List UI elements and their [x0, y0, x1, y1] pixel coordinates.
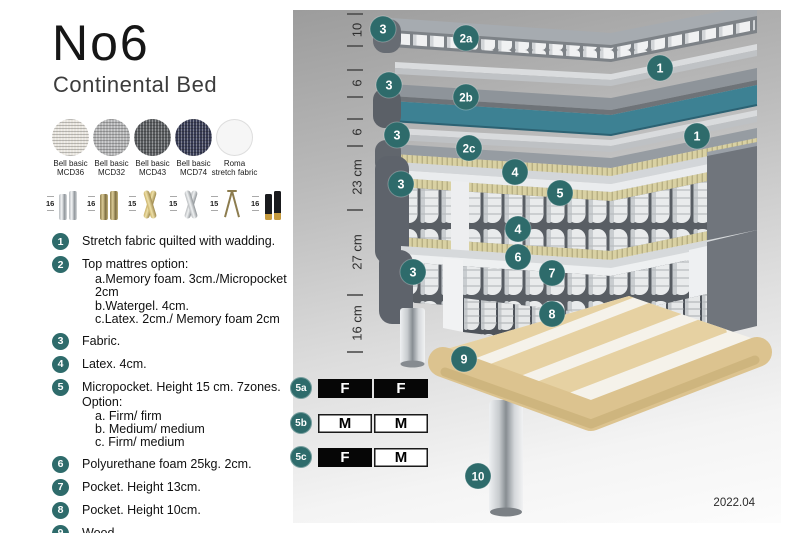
legend-subitem: b.Watergel. 4cm. — [95, 300, 290, 313]
layer-marker-6: 6 — [505, 244, 531, 270]
legend-item-number: 6 — [52, 456, 69, 473]
fabric-swatch-code: MCD43 — [135, 168, 169, 177]
dimension-label: 10 — [350, 23, 365, 37]
svg-text:8: 8 — [549, 308, 556, 322]
fabric-swatch-circle — [134, 119, 171, 156]
legend-item-text: Polyurethane foam 25kg. 2cm. — [82, 456, 252, 472]
leg-options: 161615151516 — [46, 186, 292, 220]
fabric-swatch-label: Bell basicMCD36 — [53, 159, 87, 177]
svg-text:1: 1 — [694, 130, 701, 144]
fabric-swatch-circle — [93, 119, 130, 156]
fabric-swatch: Bell basicMCD36 — [50, 119, 91, 177]
legend-item-number: 9 — [52, 525, 69, 533]
legend-item: 8Pocket. Height 10cm. — [52, 502, 290, 519]
layer-top-pad-2a — [373, 10, 757, 62]
legend-item: 3Fabric. — [52, 333, 290, 350]
layer-marker-4: 4 — [505, 216, 531, 242]
layer-marker-3: 3 — [384, 122, 410, 148]
product-subtitle: Continental Bed — [53, 72, 217, 98]
legend-item-text: Top mattres option: — [82, 256, 188, 272]
fabric-swatch-code: stretch fabric — [212, 168, 258, 177]
legend-subitem: b. Medium/ medium — [95, 423, 290, 436]
fabric-swatch-name: Bell basic — [53, 159, 87, 168]
legend-item-text: Stretch fabric quilted with wadding. — [82, 233, 275, 249]
layer-marker-3: 3 — [400, 259, 426, 285]
info-panel: No6 Continental Bed Bell basicMCD36Bell … — [0, 0, 293, 533]
leg-option: 16 — [251, 186, 292, 220]
svg-text:3: 3 — [380, 23, 387, 37]
svg-text:5: 5 — [557, 187, 564, 201]
fabric-swatch-name: Bell basic — [176, 159, 210, 168]
layer-marker-4: 4 — [502, 159, 528, 185]
legend-item-number: 2 — [52, 256, 69, 273]
leg-option: 16 — [87, 186, 128, 220]
leg-graphic-hairpin — [220, 186, 244, 220]
svg-text:3: 3 — [386, 79, 393, 93]
legend-item-text: Latex. 4cm. — [82, 356, 147, 372]
dimension-label: 23 cm — [350, 159, 365, 194]
legend-item-number: 5 — [52, 379, 69, 396]
layer-marker-2a: 2a — [453, 25, 479, 51]
legend-item-number: 7 — [52, 479, 69, 496]
legend-item-text: Wood. — [82, 525, 118, 533]
fabric-swatch-code: MCD74 — [176, 168, 210, 177]
legend-subitem: c. Firm/ medium — [95, 436, 290, 449]
svg-text:10: 10 — [472, 472, 485, 484]
fabric-swatch-circle — [175, 119, 212, 156]
legend-subitem: a. Firm/ firm — [95, 410, 290, 423]
legend-item: 4Latex. 4cm. — [52, 356, 290, 373]
layer-marker-3: 3 — [370, 16, 396, 42]
leg-height-label: 15 — [210, 194, 218, 213]
leg-graphic-chrome-cylinder — [56, 186, 80, 220]
fabric-swatch-name: Roma — [212, 159, 258, 168]
legend-item-text: Pocket. Height 10cm. — [82, 502, 201, 518]
svg-text:2b: 2b — [459, 93, 472, 105]
fabric-swatch: Romastretch fabric — [214, 119, 255, 177]
fabric-swatch-label: Bell basicMCD32 — [94, 159, 128, 177]
layer-legend: 1Stretch fabric quilted with wadding.2To… — [52, 233, 290, 533]
page: No6 Continental Bed Bell basicMCD36Bell … — [0, 0, 800, 533]
dimension-label: 16 cm — [350, 305, 365, 340]
bed-exploded-diagram: 106623 cm27 cm16 cm — [293, 10, 781, 523]
svg-text:3: 3 — [410, 266, 417, 280]
legend-item-text: Pocket. Height 13cm. — [82, 479, 201, 495]
leg-graphic-brass-cylinder — [97, 186, 121, 220]
fabric-swatch-code: MCD36 — [53, 168, 87, 177]
svg-text:2c: 2c — [463, 144, 476, 156]
legend-item: 2Top mattres option: — [52, 256, 290, 273]
legend-item: 5Micropocket. Height 15 cm. 7zones. Opti… — [52, 379, 290, 410]
layer-marker-1: 1 — [647, 55, 673, 81]
legend-subitem: a.Memory foam. 3cm./Micropocket 2cm — [95, 273, 290, 300]
dimension-label: 6 — [350, 79, 365, 86]
leg-height-label: 16 — [87, 194, 95, 213]
svg-text:4: 4 — [515, 223, 522, 237]
leg-option: 15 — [169, 186, 210, 220]
legend-item: 6Polyurethane foam 25kg. 2cm. — [52, 456, 290, 473]
legend-subitem: c.Latex. 2cm./ Memory foam 2cm — [95, 313, 290, 326]
leg-graphic-silver-twist — [179, 186, 203, 220]
layer-marker-3: 3 — [376, 72, 402, 98]
fabric-swatch-name: Bell basic — [135, 159, 169, 168]
layer-marker-2c: 2c — [456, 135, 482, 161]
legend-item-text: Micropocket. Height 15 cm. 7zones. Optio… — [82, 379, 290, 410]
leg-height-label: 15 — [169, 194, 177, 213]
legend-item-number: 8 — [52, 502, 69, 519]
svg-text:4: 4 — [512, 166, 519, 180]
fabric-swatch-label: Bell basicMCD43 — [135, 159, 169, 177]
fabric-swatch-label: Bell basicMCD74 — [176, 159, 210, 177]
svg-text:3: 3 — [398, 178, 405, 192]
layer-marker-7: 7 — [539, 260, 565, 286]
dimension-label: 27 cm — [350, 234, 365, 269]
layer-marker-9: 9 — [451, 346, 477, 372]
fabric-swatches: Bell basicMCD36Bell basicMCD32Bell basic… — [50, 119, 255, 177]
layer-marker-1: 1 — [684, 123, 710, 149]
legend-item: 7Pocket. Height 13cm. — [52, 479, 290, 496]
leg-height-label: 15 — [128, 194, 136, 213]
fabric-swatch-label: Romastretch fabric — [212, 159, 258, 177]
diagram-panel: 106623 cm27 cm16 cm — [293, 10, 781, 523]
svg-text:1: 1 — [657, 62, 664, 76]
fabric-swatch: Bell basicMCD74 — [173, 119, 214, 177]
legend-item: 1Stretch fabric quilted with wadding. — [52, 233, 290, 250]
layer-marker-3: 3 — [388, 171, 414, 197]
legend-item-number: 3 — [52, 333, 69, 350]
leg-option: 15 — [210, 186, 251, 220]
legend-item-number: 1 — [52, 233, 69, 250]
fabric-swatch-name: Bell basic — [94, 159, 128, 168]
leg-graphic-black-gold — [261, 186, 285, 220]
dimension-ruler: 106623 cm27 cm16 cm — [347, 14, 365, 352]
layer-marker-10: 10 — [465, 463, 491, 489]
leg-graphic-gold-twist — [138, 186, 162, 220]
svg-text:6: 6 — [515, 251, 522, 265]
legend-item-text: Fabric. — [82, 333, 120, 349]
version-date: 2022.04 — [713, 497, 755, 509]
legend-item-number: 4 — [52, 356, 69, 373]
leg-height-label: 16 — [46, 194, 54, 213]
svg-text:9: 9 — [461, 353, 468, 367]
svg-text:7: 7 — [549, 267, 556, 281]
layer-marker-5: 5 — [547, 180, 573, 206]
leg-height-label: 16 — [251, 194, 259, 213]
fabric-swatch: Bell basicMCD43 — [132, 119, 173, 177]
fabric-swatch: Bell basicMCD32 — [91, 119, 132, 177]
leg-option: 15 — [128, 186, 169, 220]
layer-marker-2b: 2b — [453, 84, 479, 110]
leg-option: 16 — [46, 186, 87, 220]
legend-item: 9Wood. — [52, 525, 290, 533]
product-title: No6 — [52, 14, 150, 72]
fabric-swatch-code: MCD32 — [94, 168, 128, 177]
fabric-swatch-circle — [52, 119, 89, 156]
layer-marker-8: 8 — [539, 301, 565, 327]
svg-text:2a: 2a — [460, 34, 473, 46]
dimension-label: 6 — [350, 128, 365, 135]
svg-text:3: 3 — [394, 129, 401, 143]
fabric-swatch-circle — [216, 119, 253, 156]
